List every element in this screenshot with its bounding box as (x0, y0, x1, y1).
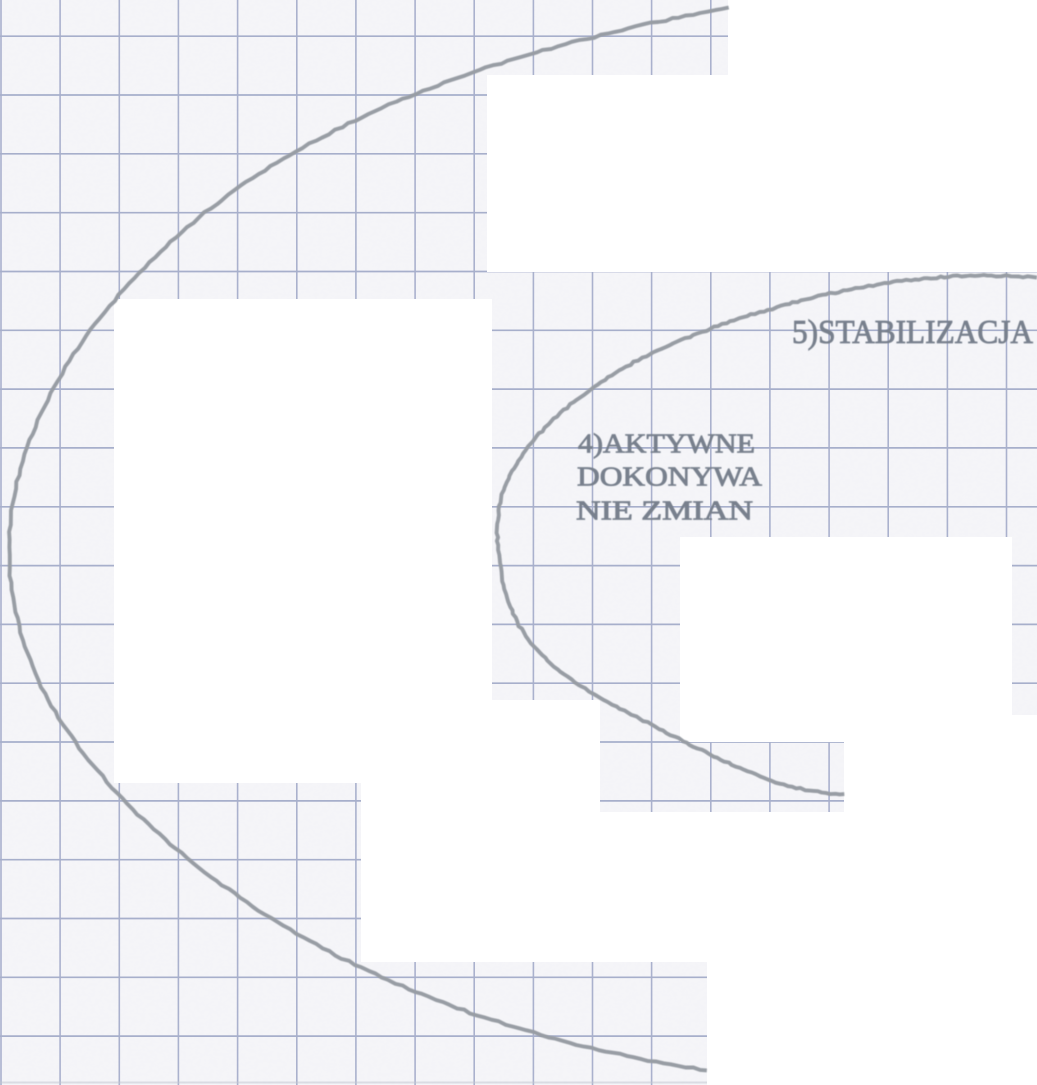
svg-text:DOKONYWA: DOKONYWA (577, 462, 763, 492)
svg-text:NIE ZMIAN: NIE ZMIAN (576, 496, 753, 526)
svg-text:5)STABILIZACJA: 5)STABILIZACJA (792, 314, 1033, 351)
svg-text:4)AKTYWNE: 4)AKTYWNE (578, 428, 755, 458)
